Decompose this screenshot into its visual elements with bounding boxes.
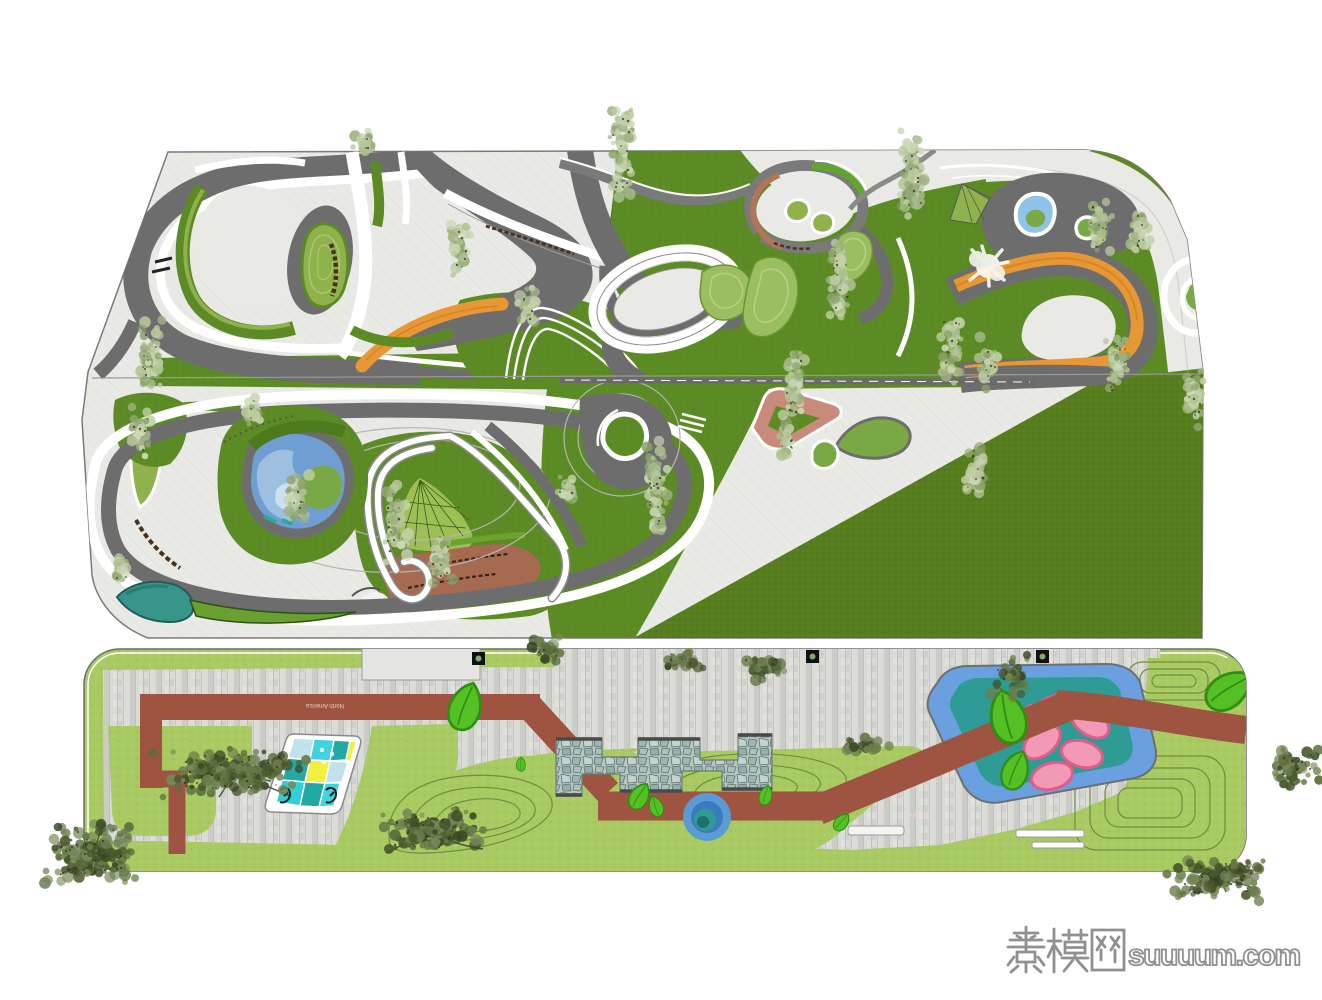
svg-text:Europe: Europe (909, 812, 930, 819)
svg-text:suuuum.com: suuuum.com (1128, 939, 1300, 972)
svg-text:North America: North America (305, 702, 344, 708)
